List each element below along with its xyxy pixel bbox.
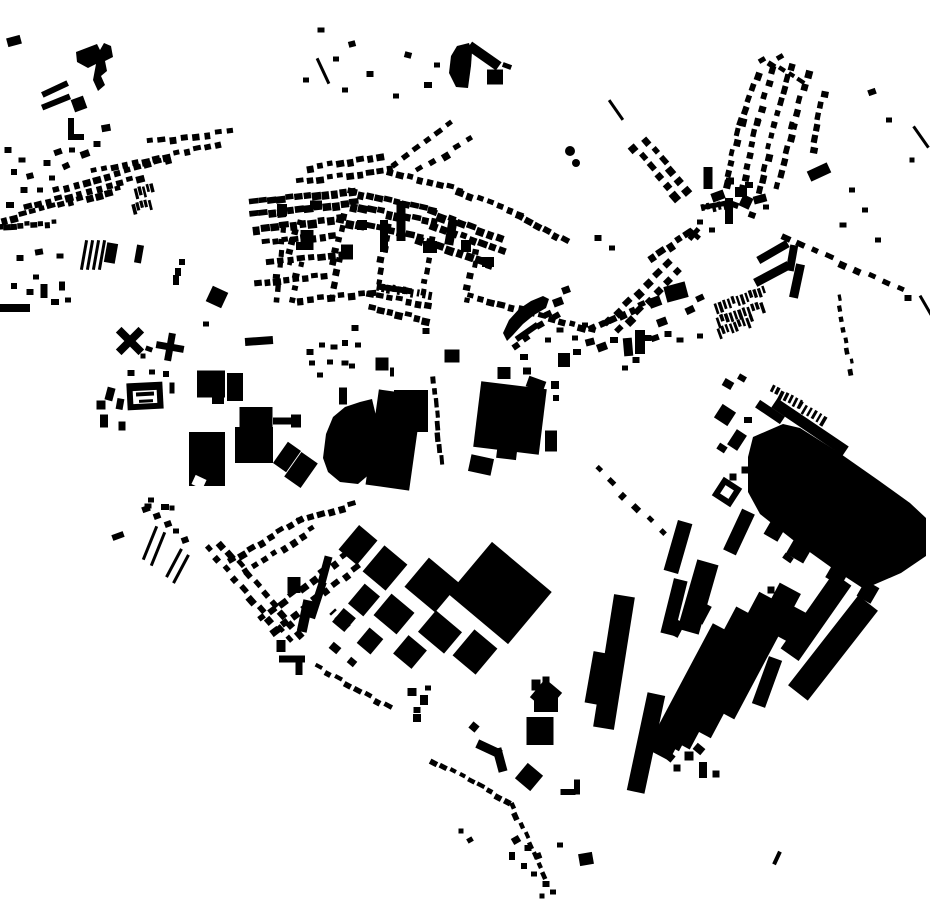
- building: [758, 56, 767, 64]
- row-house: [51, 219, 56, 224]
- building: [327, 360, 333, 365]
- row-house: [761, 286, 766, 294]
- row-house: [416, 177, 424, 185]
- row-house: [336, 160, 345, 168]
- building: [511, 835, 521, 845]
- building: [203, 322, 209, 327]
- row-house: [852, 267, 861, 276]
- row-house: [647, 515, 655, 523]
- building: [296, 657, 303, 675]
- building: [164, 520, 173, 528]
- building: [309, 361, 315, 366]
- row-house: [750, 303, 755, 311]
- building: [574, 780, 580, 795]
- row-house: [394, 311, 403, 320]
- row-house: [383, 701, 393, 709]
- row-house: [30, 222, 37, 228]
- row-house: [801, 405, 808, 415]
- row-house: [788, 63, 796, 72]
- building: [349, 364, 355, 369]
- building: [849, 188, 855, 193]
- building: [33, 275, 39, 280]
- row-house: [251, 561, 259, 569]
- building: [111, 531, 124, 541]
- row-house: [306, 177, 313, 184]
- row-house: [641, 137, 651, 147]
- building: [521, 863, 527, 869]
- row-house: [338, 505, 347, 514]
- row-house: [813, 123, 820, 131]
- building: [578, 852, 594, 866]
- city-figure-ground-map: [0, 0, 930, 924]
- row-house: [467, 777, 476, 784]
- row-house: [253, 579, 262, 588]
- building: [545, 431, 557, 452]
- row-house: [92, 176, 102, 185]
- building: [5, 147, 12, 153]
- building: [776, 53, 785, 61]
- building: [709, 228, 715, 233]
- row-house: [486, 299, 495, 307]
- row-house: [537, 862, 543, 869]
- row-house: [28, 208, 36, 215]
- building: [342, 340, 348, 346]
- row-house: [277, 598, 289, 609]
- row-house: [340, 213, 348, 221]
- building: [608, 99, 624, 120]
- row-house: [724, 324, 729, 333]
- row-house: [446, 183, 454, 190]
- row-house: [477, 239, 488, 249]
- row-house: [814, 112, 821, 120]
- row-house: [216, 541, 226, 552]
- building: [53, 148, 63, 156]
- building: [41, 284, 48, 298]
- row-house: [655, 246, 666, 257]
- row-house: [317, 162, 324, 169]
- row-house: [542, 226, 552, 235]
- building: [737, 373, 747, 382]
- building: [807, 162, 832, 181]
- row-house: [460, 232, 468, 240]
- row-house: [783, 145, 791, 154]
- row-house: [280, 227, 286, 233]
- row-house: [52, 186, 60, 193]
- building: [723, 509, 755, 556]
- row-house: [401, 152, 410, 161]
- building: [693, 743, 706, 756]
- row-house: [367, 155, 374, 163]
- row-house: [289, 539, 299, 549]
- row-house: [204, 143, 212, 150]
- row-house: [773, 182, 780, 190]
- row-house: [665, 166, 676, 178]
- building: [596, 342, 608, 353]
- building: [175, 268, 181, 276]
- building: [149, 370, 155, 375]
- row-house: [383, 196, 392, 203]
- row-house: [339, 189, 347, 197]
- row-house: [540, 871, 547, 880]
- building: [212, 394, 224, 404]
- row-house: [298, 261, 304, 267]
- building: [595, 235, 602, 241]
- building: [145, 345, 153, 352]
- building: [459, 829, 464, 834]
- row-house: [524, 831, 530, 839]
- row-house: [395, 171, 404, 179]
- building: [487, 70, 503, 85]
- row-house: [324, 670, 332, 678]
- row-house: [342, 572, 351, 582]
- building: [170, 506, 175, 511]
- row-house: [652, 146, 660, 155]
- row-house: [429, 222, 439, 232]
- row-house: [86, 188, 94, 196]
- building: [163, 371, 169, 377]
- row-house: [346, 173, 355, 181]
- building: [363, 545, 408, 590]
- row-house: [669, 191, 682, 204]
- building: [317, 373, 323, 378]
- row-house: [666, 242, 676, 253]
- building: [768, 587, 775, 594]
- row-house: [306, 165, 314, 173]
- row-house: [465, 135, 473, 142]
- row-house: [226, 128, 233, 134]
- row-house: [283, 277, 290, 284]
- row-house: [441, 151, 451, 161]
- building: [525, 845, 532, 851]
- building: [26, 172, 34, 180]
- row-house: [739, 294, 745, 305]
- row-house: [332, 202, 341, 211]
- building: [423, 328, 430, 334]
- building: [116, 398, 125, 410]
- building: [393, 635, 427, 669]
- row-house: [316, 510, 326, 518]
- building: [100, 415, 108, 428]
- building: [695, 294, 705, 303]
- building: [357, 220, 367, 230]
- building: [59, 282, 65, 291]
- row-house: [765, 153, 774, 162]
- row-house: [286, 521, 295, 530]
- building: [553, 395, 559, 401]
- row-house: [838, 294, 842, 301]
- row-house: [386, 309, 393, 316]
- building: [623, 338, 634, 357]
- building: [235, 427, 273, 463]
- building: [376, 358, 389, 371]
- row-house: [357, 191, 365, 200]
- building: [520, 354, 528, 360]
- row-house: [662, 258, 672, 268]
- row-house: [157, 136, 166, 142]
- row-house: [847, 369, 853, 376]
- row-house: [821, 91, 829, 98]
- row-house: [249, 198, 259, 205]
- building: [635, 330, 645, 354]
- building: [170, 383, 175, 394]
- row-house: [215, 129, 222, 135]
- row-house: [774, 387, 781, 395]
- building: [11, 283, 17, 289]
- row-house: [787, 134, 796, 143]
- row-house: [353, 686, 363, 695]
- building: [572, 336, 578, 341]
- row-house: [180, 134, 188, 141]
- row-house: [340, 200, 349, 208]
- building: [27, 289, 34, 295]
- row-house: [110, 164, 119, 172]
- row-house: [169, 137, 177, 145]
- building: [697, 220, 703, 225]
- row-house: [727, 160, 734, 167]
- row-house: [476, 781, 485, 789]
- row-house: [339, 225, 346, 233]
- row-house: [302, 275, 309, 282]
- building: [493, 747, 508, 773]
- row-house: [631, 503, 641, 513]
- row-house: [734, 127, 741, 136]
- row-house: [796, 77, 805, 85]
- row-house: [412, 214, 422, 221]
- row-house: [744, 292, 749, 302]
- row-house: [149, 183, 155, 192]
- row-house: [287, 207, 294, 215]
- row-house: [308, 254, 315, 261]
- row-house: [145, 184, 150, 192]
- building: [650, 334, 660, 342]
- building: [413, 714, 421, 722]
- row-house: [748, 141, 755, 148]
- row-house: [193, 145, 202, 152]
- building: [496, 442, 518, 460]
- building: [119, 422, 126, 431]
- row-house: [421, 279, 428, 285]
- building: [561, 285, 571, 294]
- row-house: [319, 234, 326, 242]
- building: [424, 82, 432, 88]
- building: [722, 378, 735, 390]
- building: [875, 238, 881, 243]
- row-house: [413, 315, 420, 323]
- row-house: [735, 296, 741, 307]
- row-house: [368, 304, 376, 311]
- row-house: [663, 182, 673, 192]
- building: [558, 353, 570, 367]
- building: [609, 246, 615, 251]
- building: [713, 771, 720, 778]
- row-house: [364, 691, 373, 699]
- row-house: [445, 120, 453, 128]
- row-house: [230, 575, 239, 584]
- building: [726, 178, 734, 185]
- building: [134, 245, 144, 264]
- building: [104, 387, 115, 402]
- row-house: [261, 589, 270, 598]
- building: [69, 148, 75, 153]
- building: [316, 58, 331, 85]
- row-house: [768, 132, 774, 139]
- building: [748, 211, 757, 219]
- building: [540, 894, 545, 899]
- row-house: [681, 186, 692, 197]
- building: [348, 584, 380, 617]
- building: [727, 429, 747, 451]
- row-house: [674, 235, 683, 244]
- row-house: [330, 281, 338, 289]
- row-house: [780, 158, 788, 167]
- building: [420, 695, 428, 705]
- building: [453, 629, 498, 674]
- building: [585, 337, 596, 346]
- row-house: [472, 261, 478, 269]
- building: [374, 594, 415, 635]
- row-house: [367, 205, 378, 213]
- row-house: [299, 532, 308, 541]
- row-house: [338, 292, 345, 298]
- building: [367, 71, 374, 77]
- row-house: [17, 223, 23, 229]
- row-house: [385, 211, 393, 221]
- row-house: [426, 257, 432, 263]
- building: [753, 193, 768, 204]
- row-house: [239, 584, 249, 594]
- building: [840, 223, 847, 228]
- building: [347, 657, 358, 668]
- building: [101, 124, 111, 132]
- building: [886, 118, 892, 123]
- building: [310, 201, 322, 210]
- row-house: [273, 274, 280, 279]
- row-house: [850, 358, 854, 363]
- row-house: [659, 528, 667, 536]
- row-house: [770, 385, 776, 393]
- building: [339, 525, 378, 565]
- row-house: [122, 162, 129, 169]
- row-house: [85, 194, 94, 203]
- building: [352, 325, 359, 331]
- building: [753, 261, 791, 287]
- building: [745, 182, 753, 188]
- row-house: [292, 285, 299, 291]
- row-house: [113, 170, 121, 177]
- building: [333, 57, 339, 62]
- row-house: [54, 194, 63, 201]
- row-house: [303, 192, 311, 199]
- row-house: [73, 182, 80, 190]
- row-house: [258, 197, 267, 203]
- row-house: [3, 224, 11, 230]
- building: [303, 78, 309, 83]
- row-house: [777, 97, 785, 106]
- round-building: [565, 146, 575, 156]
- row-house: [257, 604, 267, 614]
- building: [511, 342, 520, 351]
- row-house: [663, 276, 673, 286]
- building: [552, 297, 564, 308]
- building: [342, 88, 348, 93]
- row-house: [274, 297, 280, 302]
- row-house: [436, 181, 445, 189]
- row-house: [838, 316, 843, 322]
- bird-shaped-building: [76, 43, 113, 91]
- row-house: [272, 238, 278, 244]
- row-house: [560, 235, 570, 244]
- row-house: [466, 272, 474, 279]
- row-house: [777, 169, 785, 178]
- row-house: [868, 272, 877, 280]
- building: [423, 241, 437, 253]
- row-house: [249, 210, 259, 217]
- row-house: [423, 136, 432, 144]
- row-house: [659, 155, 669, 166]
- building: [730, 474, 737, 481]
- row-house: [280, 545, 289, 554]
- building: [357, 628, 384, 655]
- row-house: [639, 152, 648, 162]
- row-house: [765, 143, 771, 150]
- building: [414, 707, 421, 713]
- building: [332, 608, 356, 632]
- row-house: [435, 410, 440, 418]
- row-house: [270, 223, 279, 231]
- row-house: [758, 105, 767, 113]
- row-house: [806, 407, 813, 416]
- row-house: [260, 555, 268, 563]
- row-house: [147, 138, 154, 144]
- row-house: [289, 297, 296, 304]
- row-house: [296, 516, 304, 524]
- row-house: [374, 194, 384, 202]
- row-house: [347, 159, 355, 167]
- row-house: [643, 278, 654, 289]
- row-house: [788, 395, 794, 404]
- row-house: [327, 508, 335, 517]
- row-house: [357, 171, 364, 179]
- row-house: [466, 222, 477, 231]
- row-house: [633, 288, 645, 300]
- row-house: [444, 245, 455, 256]
- row-house: [421, 317, 431, 326]
- row-house: [750, 129, 757, 138]
- map-canvas: [0, 0, 930, 924]
- row-house: [317, 217, 325, 224]
- building: [348, 40, 356, 48]
- row-house: [63, 185, 71, 193]
- row-house: [148, 200, 153, 210]
- building: [277, 204, 287, 216]
- row-house: [331, 190, 339, 199]
- row-house: [729, 149, 735, 157]
- row-house: [404, 311, 412, 317]
- building: [685, 752, 694, 761]
- building: [329, 642, 342, 655]
- row-house: [377, 267, 384, 275]
- row-house: [487, 198, 495, 205]
- row-house: [104, 189, 114, 197]
- row-house: [414, 301, 422, 309]
- row-house: [435, 432, 441, 442]
- row-house: [421, 217, 429, 225]
- building: [408, 688, 417, 696]
- row-house: [126, 176, 134, 182]
- building: [622, 366, 628, 371]
- building: [17, 255, 24, 261]
- row-house: [279, 221, 289, 228]
